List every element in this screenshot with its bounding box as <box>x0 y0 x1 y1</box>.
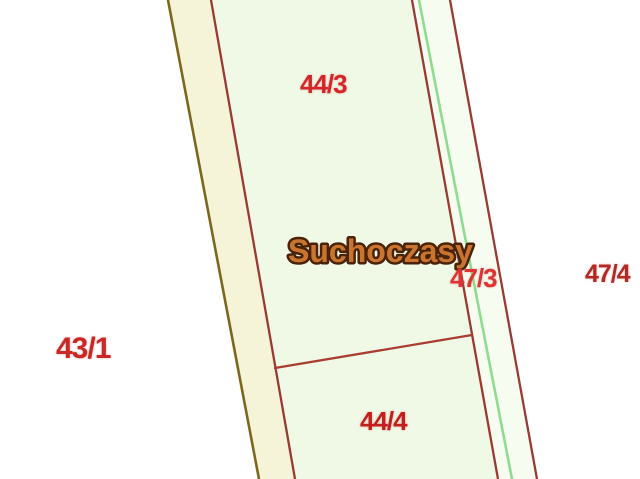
parcel-label-47-4: 47/4 <box>585 262 630 287</box>
cadastral-map-viewport[interactable]: Suchoczasy 44/3 47/3 47/4 43/1 44/4 <box>0 0 640 479</box>
parcel-label-47-3: 47/3 <box>450 265 497 291</box>
village-label: Suchoczasy <box>288 233 473 269</box>
parcel-label-44-4: 44/4 <box>360 408 407 434</box>
parcel-label-44-3: 44/3 <box>300 71 347 97</box>
parcel-label-43-1: 43/1 <box>56 334 110 364</box>
